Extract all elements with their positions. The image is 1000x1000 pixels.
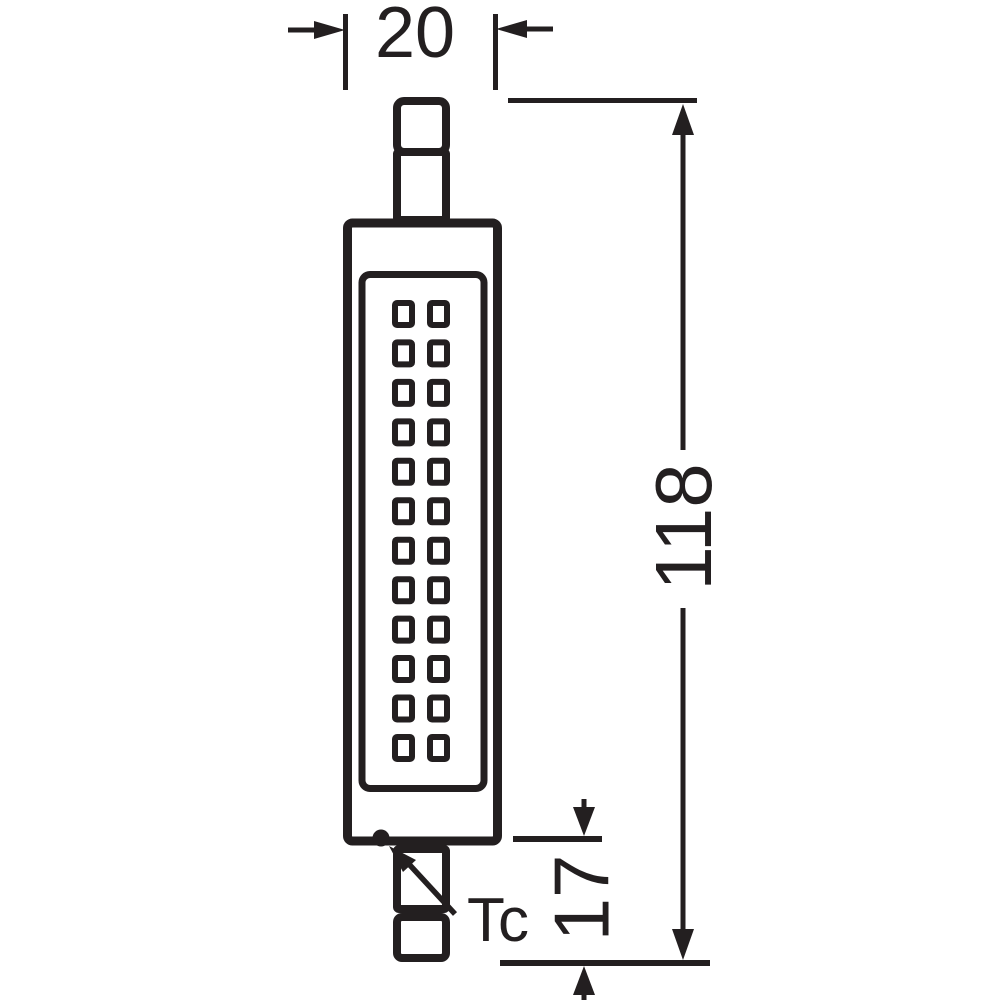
led-chip bbox=[395, 421, 412, 443]
led-chip bbox=[395, 658, 412, 680]
top-pin-base bbox=[397, 152, 446, 220]
lamp bbox=[348, 101, 498, 958]
lamp-technical-drawing: Tc 20 118 17 bbox=[0, 0, 1000, 1000]
led-chip bbox=[395, 303, 412, 325]
led-chip bbox=[395, 737, 412, 759]
top-pin-tip bbox=[397, 101, 446, 152]
led-chip bbox=[430, 658, 447, 680]
dimension-length: 118 bbox=[500, 101, 728, 964]
led-chip bbox=[430, 540, 447, 562]
width-arrowhead-right-icon bbox=[496, 20, 527, 38]
base-arrowhead-top-icon bbox=[573, 807, 595, 836]
dimension-width: 20 bbox=[288, 0, 553, 90]
led-chip bbox=[395, 500, 412, 522]
lamp-body bbox=[348, 223, 498, 841]
led-chip bbox=[395, 342, 412, 364]
led-chip bbox=[430, 737, 447, 759]
led-chip bbox=[430, 619, 447, 641]
width-dimension-label: 20 bbox=[375, 0, 455, 73]
lamp-inner-panel bbox=[362, 275, 484, 789]
tc-dot bbox=[373, 830, 390, 847]
length-dimension-label: 118 bbox=[639, 463, 728, 591]
tc-label: Tc bbox=[467, 886, 529, 955]
bottom-pin-tip bbox=[397, 917, 446, 958]
led-chip bbox=[395, 579, 412, 601]
length-arrowhead-top-icon bbox=[672, 104, 694, 135]
base-dimension-label: 17 bbox=[537, 855, 625, 942]
led-chip bbox=[395, 698, 412, 720]
led-chip bbox=[430, 579, 447, 601]
dimension-base: 17 bbox=[513, 799, 625, 1000]
led-chip bbox=[430, 500, 447, 522]
length-arrowhead-bottom-icon bbox=[672, 929, 694, 960]
led-chip bbox=[395, 382, 412, 404]
led-grid bbox=[395, 303, 447, 759]
base-arrowhead-bottom-icon bbox=[573, 966, 595, 995]
led-chip bbox=[430, 382, 447, 404]
led-chip bbox=[430, 342, 447, 364]
led-chip bbox=[430, 303, 447, 325]
led-chip bbox=[395, 540, 412, 562]
led-chip bbox=[430, 461, 447, 483]
led-chip bbox=[395, 619, 412, 641]
led-chip bbox=[430, 421, 447, 443]
led-chip bbox=[430, 698, 447, 720]
dimension-drawing: Tc 20 118 17 bbox=[0, 0, 1000, 1000]
led-chip bbox=[395, 461, 412, 483]
width-arrowhead-left-icon bbox=[314, 21, 345, 39]
